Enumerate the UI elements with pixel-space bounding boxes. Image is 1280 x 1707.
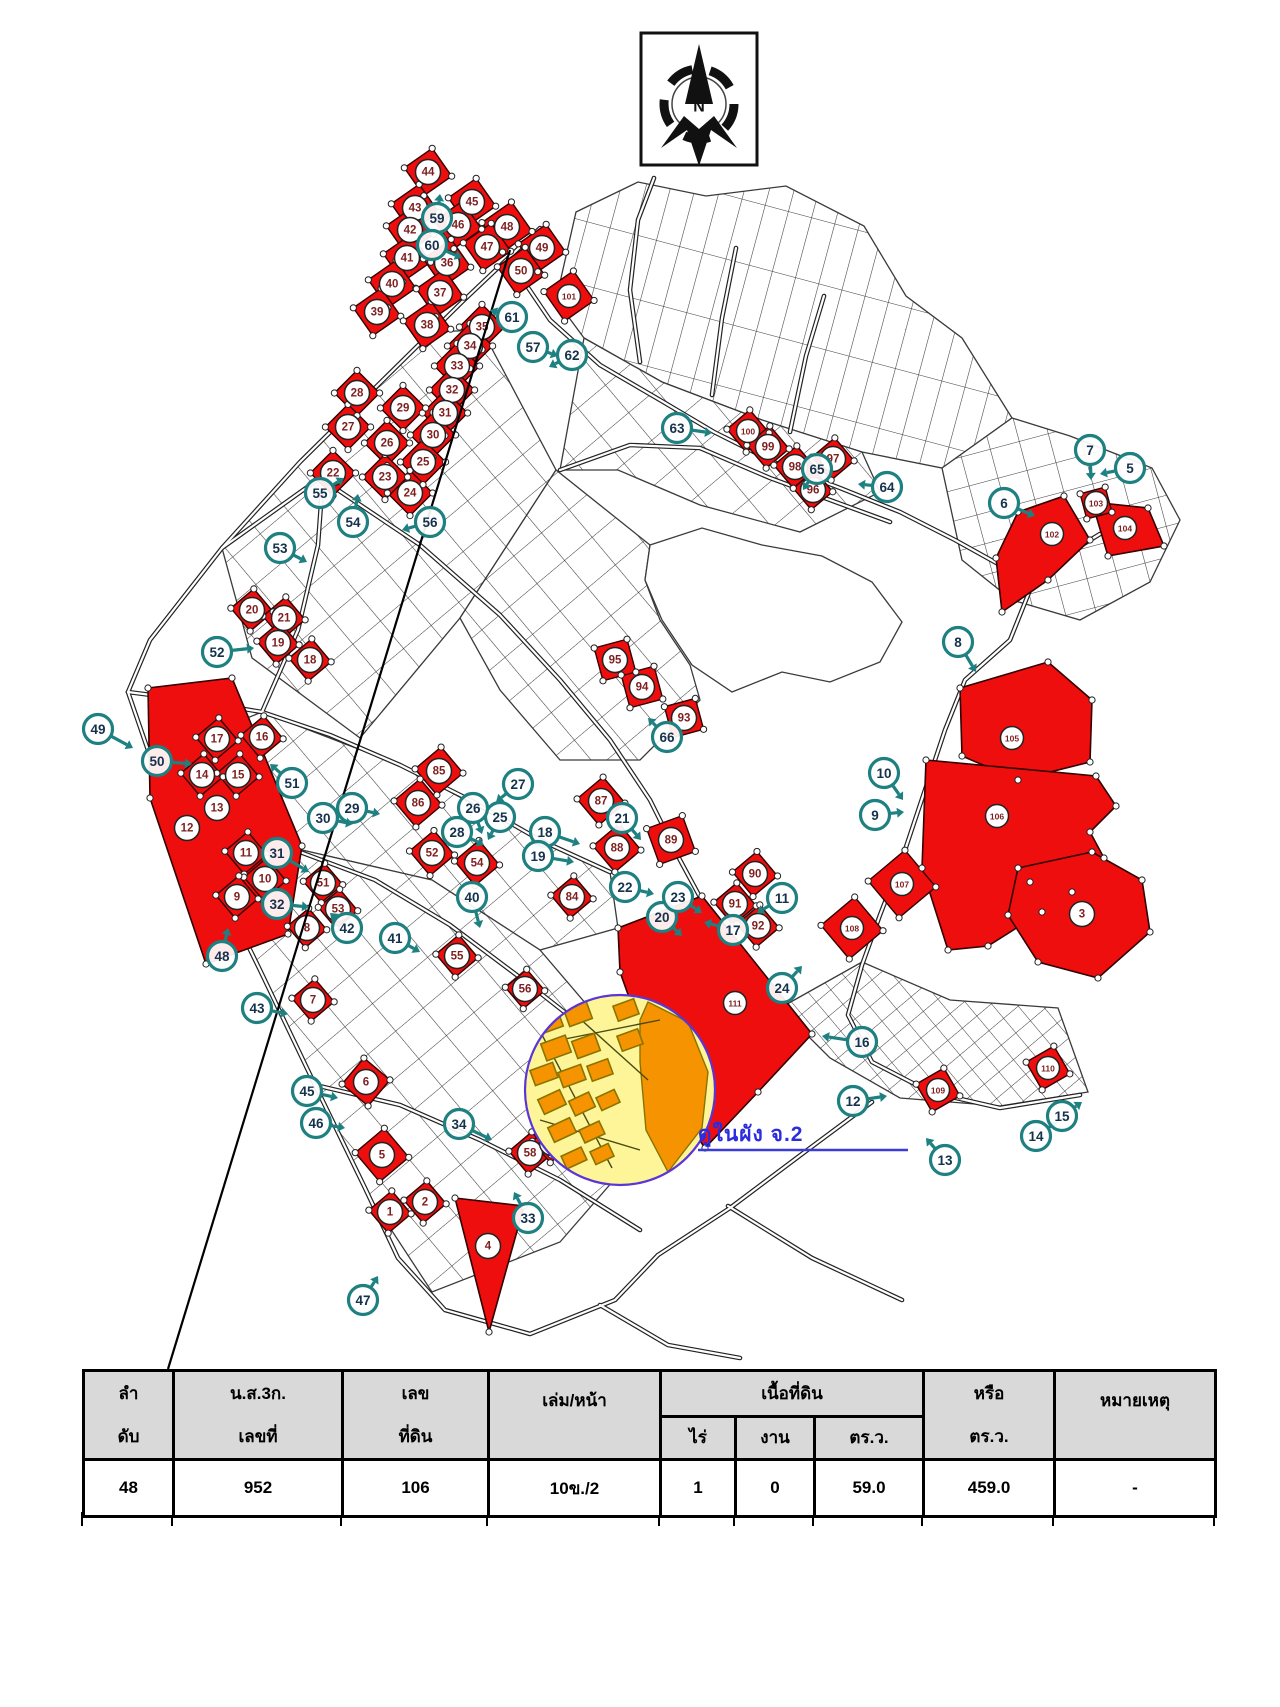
reference-number: 62: [564, 348, 579, 363]
reference-number: 66: [659, 730, 675, 745]
parcel-number: 24: [404, 488, 417, 500]
parcel-number: 6: [363, 1077, 369, 1089]
parcel-number: 28: [351, 388, 364, 400]
parcel-number: 12: [181, 823, 194, 835]
reference-number: 40: [464, 890, 479, 905]
compass-rose: N: [641, 33, 757, 166]
col-subheader-1: งาน: [736, 1416, 815, 1460]
reference-number: 8: [954, 635, 962, 650]
parcel-number: 39: [371, 307, 384, 319]
arrow-icon: [897, 808, 905, 818]
reference-number: 11: [775, 891, 790, 906]
reference-number: 24: [774, 981, 790, 996]
parcel-number: 14: [196, 770, 209, 782]
col-header-after-1: หมายเหตุ: [1055, 1371, 1216, 1460]
parcel-number: 44: [422, 167, 435, 179]
reference-number: 42: [339, 921, 354, 936]
reference-number: 45: [299, 1084, 315, 1099]
parcel-number: 19: [272, 638, 285, 650]
parcel-number: 3: [1079, 909, 1085, 921]
reference-number: 16: [854, 1035, 870, 1050]
reference-number: 60: [424, 238, 439, 253]
reference-number: 54: [345, 515, 361, 530]
reference-number: 22: [617, 880, 632, 895]
parcel-number: 47: [481, 242, 494, 254]
parcel-number: 17: [211, 734, 224, 746]
parcel-number: 21: [278, 613, 291, 625]
parcel-number: 50: [515, 266, 528, 278]
parcel-number: 16: [256, 732, 269, 744]
parcel-number: 105: [1005, 734, 1019, 744]
parcel-number: 48: [501, 222, 514, 234]
parcel-number: 106: [990, 812, 1004, 822]
parcel-number: 11: [240, 848, 253, 860]
reference-number: 17: [725, 923, 740, 938]
reference-number: 57: [525, 340, 540, 355]
row-cell-6: 59.0: [815, 1460, 924, 1517]
parcel-number: 40: [386, 279, 399, 291]
cadastral-plan-page: 4443454246484749413650403739381013534333…: [0, 0, 1280, 1707]
reference-number: 18: [537, 825, 553, 840]
parcel-number: 49: [536, 243, 549, 255]
parcel-number: 92: [752, 921, 765, 933]
reference-number: 61: [504, 310, 520, 325]
row-cell-0: 48: [84, 1460, 174, 1517]
summary-table: ลำดับน.ส.3ก.เลขที่เลขที่ดินเล่ม/หน้าเนื้…: [82, 1369, 1217, 1518]
col-header-area-group: เนื้อที่ดิน: [661, 1371, 924, 1417]
parcel-number: 15: [232, 770, 245, 782]
parcel-number: 10: [259, 874, 272, 886]
parcel-number: 4: [485, 1241, 492, 1253]
red-parcel: [960, 662, 1092, 780]
reference-number: 6: [1000, 496, 1008, 511]
parcel-number: 87: [595, 796, 608, 808]
reference-number: 20: [654, 910, 669, 925]
parcel-number: 102: [1045, 530, 1059, 540]
reference-number: 32: [269, 897, 284, 912]
parcel-number: 13: [211, 803, 224, 815]
col-header-0: ลำดับ: [84, 1371, 174, 1460]
parcel-number: 108: [845, 924, 859, 934]
parcel-number: 1: [387, 1207, 394, 1219]
parcel-number: 37: [434, 288, 447, 300]
parcel-number: 84: [566, 892, 579, 904]
parcel-number: 26: [381, 438, 394, 450]
reference-number: 47: [355, 1293, 370, 1308]
reference-number: 14: [1028, 1129, 1044, 1144]
parcel-number: 56: [519, 984, 532, 996]
parcel-number: 107: [895, 880, 909, 890]
reference-number: 56: [422, 515, 438, 530]
parcel-number: 30: [427, 430, 440, 442]
col-subheader-2: ตร.ว.: [815, 1416, 924, 1460]
parcel-number: 20: [246, 605, 259, 617]
reference-number: 9: [871, 808, 879, 823]
arrow-icon: [879, 1092, 887, 1102]
parcel-number: 9: [234, 892, 240, 904]
reference-number: 27: [510, 777, 525, 792]
parcel-number: 104: [1118, 524, 1132, 534]
parcel-number: 34: [464, 341, 477, 353]
reference-number: 41: [387, 931, 403, 946]
reference-number: 33: [520, 1211, 536, 1226]
parcel-number: 32: [446, 385, 459, 397]
parcel-number: 98: [789, 462, 802, 474]
col-header-3: เล่ม/หน้า: [489, 1371, 661, 1460]
parcel-number: 42: [404, 225, 417, 237]
reference-number: 31: [269, 846, 285, 861]
reference-number: 28: [449, 825, 465, 840]
parcel-number: 103: [1089, 499, 1103, 509]
row-cell-1: 952: [174, 1460, 343, 1517]
parcel-number: 18: [304, 655, 317, 667]
parcel-number: 89: [665, 835, 678, 847]
parcel-number: 86: [412, 798, 425, 810]
col-header-after-0: หรือตร.ว.: [924, 1371, 1055, 1460]
parcel-number: 99: [762, 442, 775, 454]
reference-number: 34: [451, 1117, 467, 1132]
reference-number: 7: [1086, 443, 1094, 458]
reference-number: 55: [312, 486, 328, 501]
parcel-summary-table: ลำดับน.ส.3ก.เลขที่เลขที่ดินเล่ม/หน้าเนื้…: [82, 1369, 1217, 1518]
arrow-icon: [646, 888, 654, 898]
parcel-number: 52: [426, 848, 439, 860]
compass-label: N: [693, 99, 705, 116]
parcel-number: 94: [636, 682, 649, 694]
reference-number: 26: [465, 801, 481, 816]
parcel-number: 93: [678, 713, 691, 725]
reference-number: 29: [344, 801, 359, 816]
reference-number: 52: [209, 645, 224, 660]
parcel-number: 54: [471, 858, 484, 870]
reference-number: 30: [315, 811, 330, 826]
reference-number: 51: [284, 776, 300, 791]
parcel-number: 95: [609, 655, 622, 667]
parcel-number: 27: [342, 422, 355, 434]
parcel-number: 90: [749, 869, 762, 881]
parcel-number: 110: [1041, 1064, 1055, 1074]
reference-number: 64: [879, 480, 895, 495]
reference-number: 46: [308, 1116, 324, 1131]
arrow-icon: [434, 194, 444, 202]
parcel-number: 25: [417, 457, 430, 469]
parcel-number: 2: [422, 1197, 428, 1209]
row-cell-7: 459.0: [924, 1460, 1055, 1517]
row-cell-8: -: [1055, 1460, 1216, 1517]
reference-number: 25: [492, 810, 508, 825]
reference-number: 48: [214, 949, 230, 964]
detail-reference-note: ดูในผัง จ.2: [698, 1118, 928, 1151]
col-header-2: เลขที่ดิน: [343, 1371, 489, 1460]
row-cell-2: 106: [343, 1460, 489, 1517]
row-cell-4: 1: [661, 1460, 736, 1517]
parcel-number: 45: [466, 197, 479, 209]
parcel-number: 43: [409, 203, 422, 215]
reference-number: 19: [530, 849, 545, 864]
parcel-number: 38: [421, 320, 434, 332]
parcel-number: 111: [728, 999, 742, 1009]
reference-number: 59: [429, 211, 444, 226]
parcel-number: 46: [452, 220, 465, 232]
reference-number: 65: [809, 462, 825, 477]
reference-number: 43: [249, 1001, 265, 1016]
row-cell-3: 10ข./2: [489, 1460, 661, 1517]
row-cell-5: 0: [736, 1460, 815, 1517]
col-header-1: น.ส.3ก.เลขที่: [174, 1371, 343, 1460]
parcel-number: 5: [379, 1150, 386, 1162]
parcel-number: 31: [439, 408, 452, 420]
parcel-number: 58: [524, 1148, 537, 1160]
reference-number: 49: [90, 722, 105, 737]
col-subheader-0: ไร่: [661, 1416, 736, 1460]
parcel-number: 29: [397, 403, 410, 415]
reference-number: 63: [669, 421, 685, 436]
parcel-number: 88: [611, 843, 624, 855]
parcel-number: 33: [451, 361, 464, 373]
reference-number: 21: [614, 811, 630, 826]
parcel-number: 23: [379, 472, 392, 484]
reference-number: 5: [1126, 461, 1134, 476]
parcel-number: 100: [741, 427, 755, 437]
reference-number: 50: [149, 754, 164, 769]
parcel-number: 85: [433, 766, 446, 778]
reference-number: 23: [670, 890, 686, 905]
parcel-number: 41: [401, 253, 414, 265]
parcel-number: 55: [451, 951, 464, 963]
parcel-number: 91: [729, 899, 742, 911]
reference-number: 53: [272, 541, 288, 556]
reference-number: 12: [845, 1094, 860, 1109]
reference-number: 13: [937, 1153, 953, 1168]
reference-number: 15: [1054, 1109, 1070, 1124]
parcel-number: 109: [931, 1086, 945, 1096]
parcel-number: 101: [562, 292, 576, 302]
parcel-number: 7: [310, 995, 316, 1007]
parcel-number: 36: [441, 258, 454, 270]
reference-number: 10: [876, 766, 891, 781]
